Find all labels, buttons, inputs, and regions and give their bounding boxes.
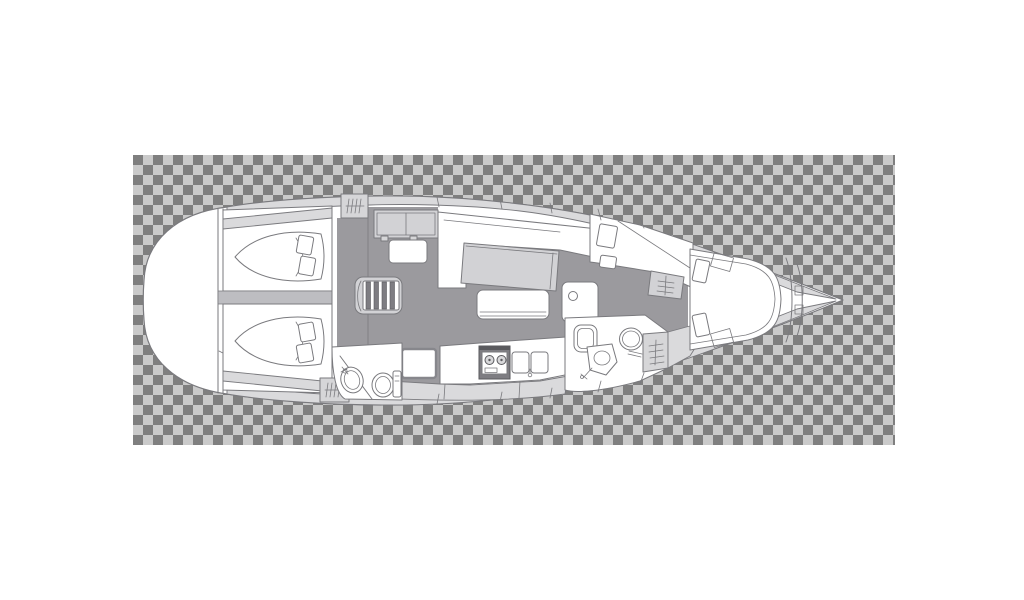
toilet [372, 371, 401, 397]
pillow-icon [298, 322, 316, 342]
companionway-steps [355, 277, 402, 314]
pillow-icon [298, 256, 316, 276]
boat-floor-plan-image [0, 0, 1024, 600]
pillow-icon [296, 235, 314, 255]
screenshot-stage [0, 0, 1024, 600]
hanging-locker [643, 332, 668, 372]
aft-cabin-starboard [223, 304, 332, 393]
seat-cushion [596, 224, 618, 249]
refrigerator [402, 349, 436, 378]
aft-cabin-port [223, 206, 332, 291]
aft-cabin-divider [218, 291, 332, 304]
hanging-locker-port [341, 194, 368, 218]
aft-head [332, 343, 402, 400]
companionway-seat [389, 240, 427, 263]
stove [479, 346, 510, 379]
sideboard [374, 210, 438, 241]
nav-seat [562, 282, 598, 322]
pillow-icon [296, 343, 314, 363]
bench-seat [477, 290, 549, 319]
dining-table [461, 243, 559, 291]
seat-cushion [599, 255, 617, 269]
